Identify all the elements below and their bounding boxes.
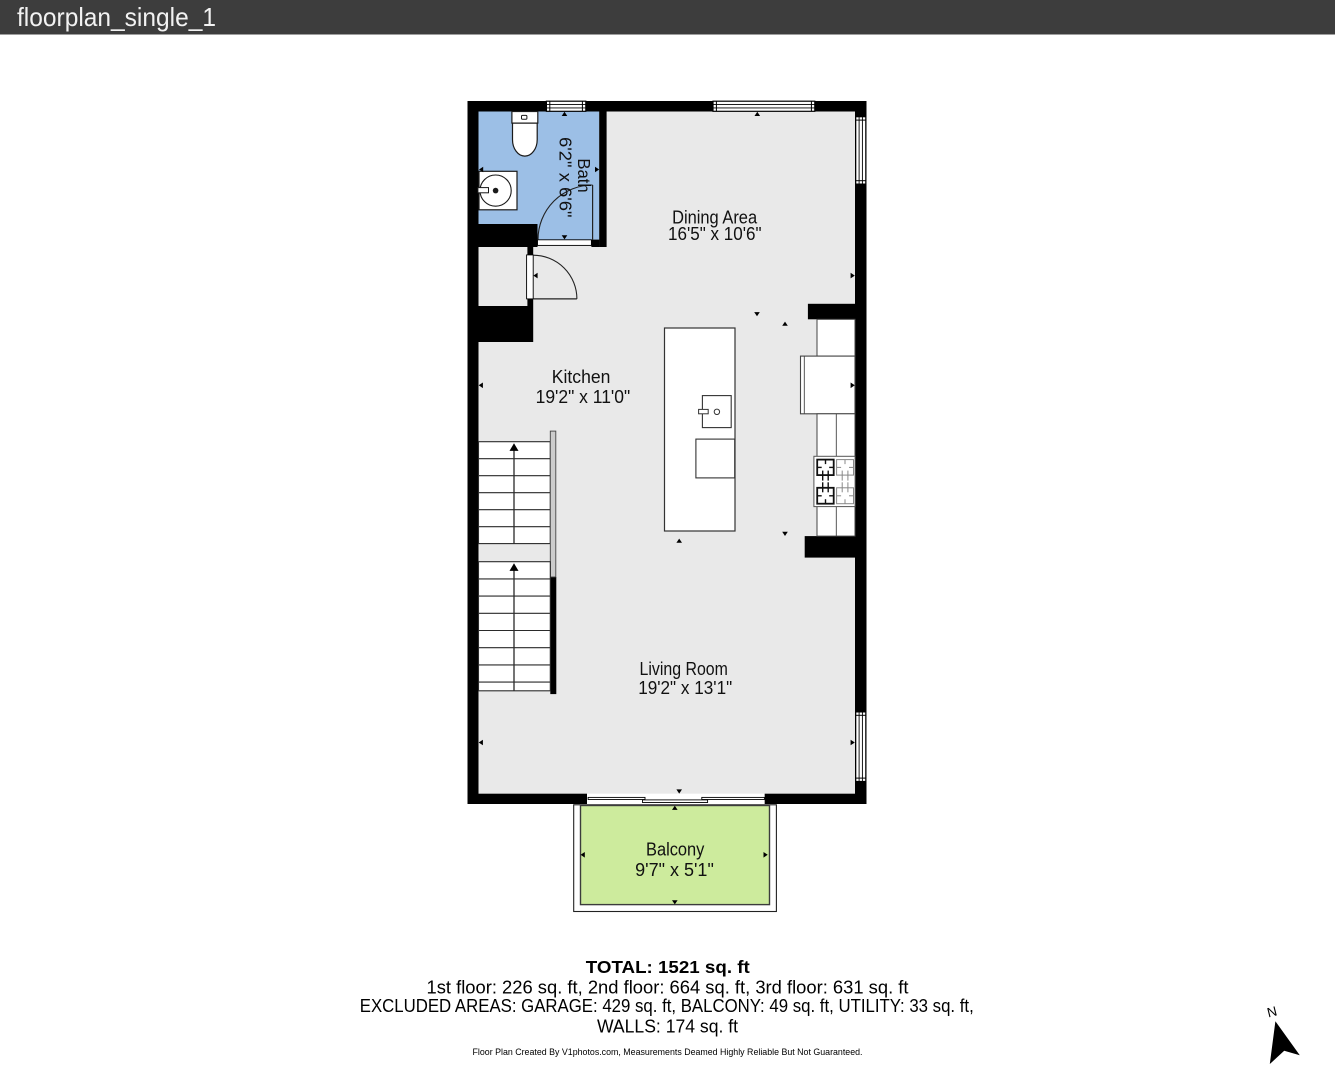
svg-text:EXCLUDED AREAS: GARAGE: 429 sq: EXCLUDED AREAS: GARAGE: 429 sq. ft, BALC… (360, 996, 974, 1016)
svg-text:Floor Plan Created By V1photos: Floor Plan Created By V1photos.com, Meas… (473, 1047, 863, 1057)
svg-text:Bath: Bath (574, 158, 594, 192)
svg-text:WALLS: 174 sq. ft: WALLS: 174 sq. ft (597, 1016, 738, 1036)
svg-text:N: N (1265, 1004, 1278, 1021)
svg-text:16'5" x 10'6": 16'5" x 10'6" (668, 223, 762, 244)
svg-text:6'2" x 6'6": 6'2" x 6'6" (556, 137, 576, 218)
svg-text:Kitchen: Kitchen (552, 366, 611, 387)
svg-text:TOTAL: 1521 sq. ft: TOTAL: 1521 sq. ft (586, 957, 750, 977)
svg-text:19'2" x 13'1": 19'2" x 13'1" (638, 677, 732, 698)
svg-text:Living Room: Living Room (640, 658, 728, 679)
svg-text:Balcony: Balcony (646, 839, 705, 860)
svg-text:1st floor: 226 sq. ft, 2nd flo: 1st floor: 226 sq. ft, 2nd floor: 664 sq… (427, 978, 909, 998)
svg-text:9'7" x 5'1": 9'7" x 5'1" (635, 859, 714, 880)
svg-text:19'2" x 11'0": 19'2" x 11'0" (536, 386, 631, 407)
svg-text:floorplan_single_1: floorplan_single_1 (17, 2, 216, 32)
